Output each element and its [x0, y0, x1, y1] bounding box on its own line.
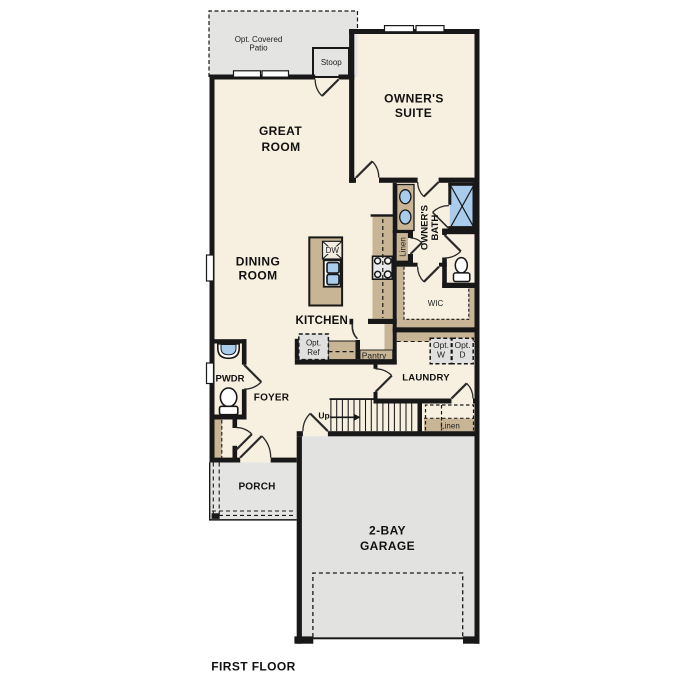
svg-text:Opt.: Opt. — [306, 339, 321, 348]
svg-text:W: W — [437, 349, 445, 359]
svg-text:Opt.: Opt. — [433, 340, 449, 350]
svg-text:FIRST FLOOR: FIRST FLOOR — [211, 660, 295, 674]
svg-text:Linen: Linen — [399, 237, 408, 257]
svg-text:Opt.: Opt. — [454, 340, 470, 350]
svg-text:KITCHEN: KITCHEN — [296, 315, 349, 327]
svg-text:BATH: BATH — [430, 215, 441, 241]
svg-text:PWDR: PWDR — [215, 374, 244, 385]
svg-text:Patio: Patio — [249, 44, 268, 53]
svg-text:ROOM: ROOM — [239, 269, 278, 283]
svg-text:LAUNDRY: LAUNDRY — [402, 373, 450, 384]
svg-text:2-BAY: 2-BAY — [369, 523, 406, 537]
svg-text:FOYER: FOYER — [254, 392, 290, 403]
svg-text:Opt. Covered: Opt. Covered — [235, 35, 283, 44]
svg-text:Up: Up — [318, 410, 329, 420]
svg-text:DW: DW — [326, 246, 340, 255]
svg-text:OWNER'S: OWNER'S — [384, 91, 444, 105]
svg-text:OWNER'S: OWNER'S — [419, 205, 430, 250]
svg-text:Pantry: Pantry — [362, 350, 387, 360]
svg-text:SUITE: SUITE — [395, 106, 432, 120]
svg-text:GARAGE: GARAGE — [360, 539, 415, 553]
svg-text:PORCH: PORCH — [238, 482, 275, 493]
svg-text:ROOM: ROOM — [262, 140, 301, 154]
svg-text:GREAT: GREAT — [259, 124, 302, 138]
svg-text:Ref: Ref — [307, 348, 320, 357]
svg-text:Stoop: Stoop — [321, 58, 342, 67]
svg-text:WIC: WIC — [428, 299, 444, 308]
svg-text:D: D — [459, 349, 465, 359]
svg-text:Linen: Linen — [440, 421, 460, 430]
svg-text:DINING: DINING — [236, 254, 280, 268]
